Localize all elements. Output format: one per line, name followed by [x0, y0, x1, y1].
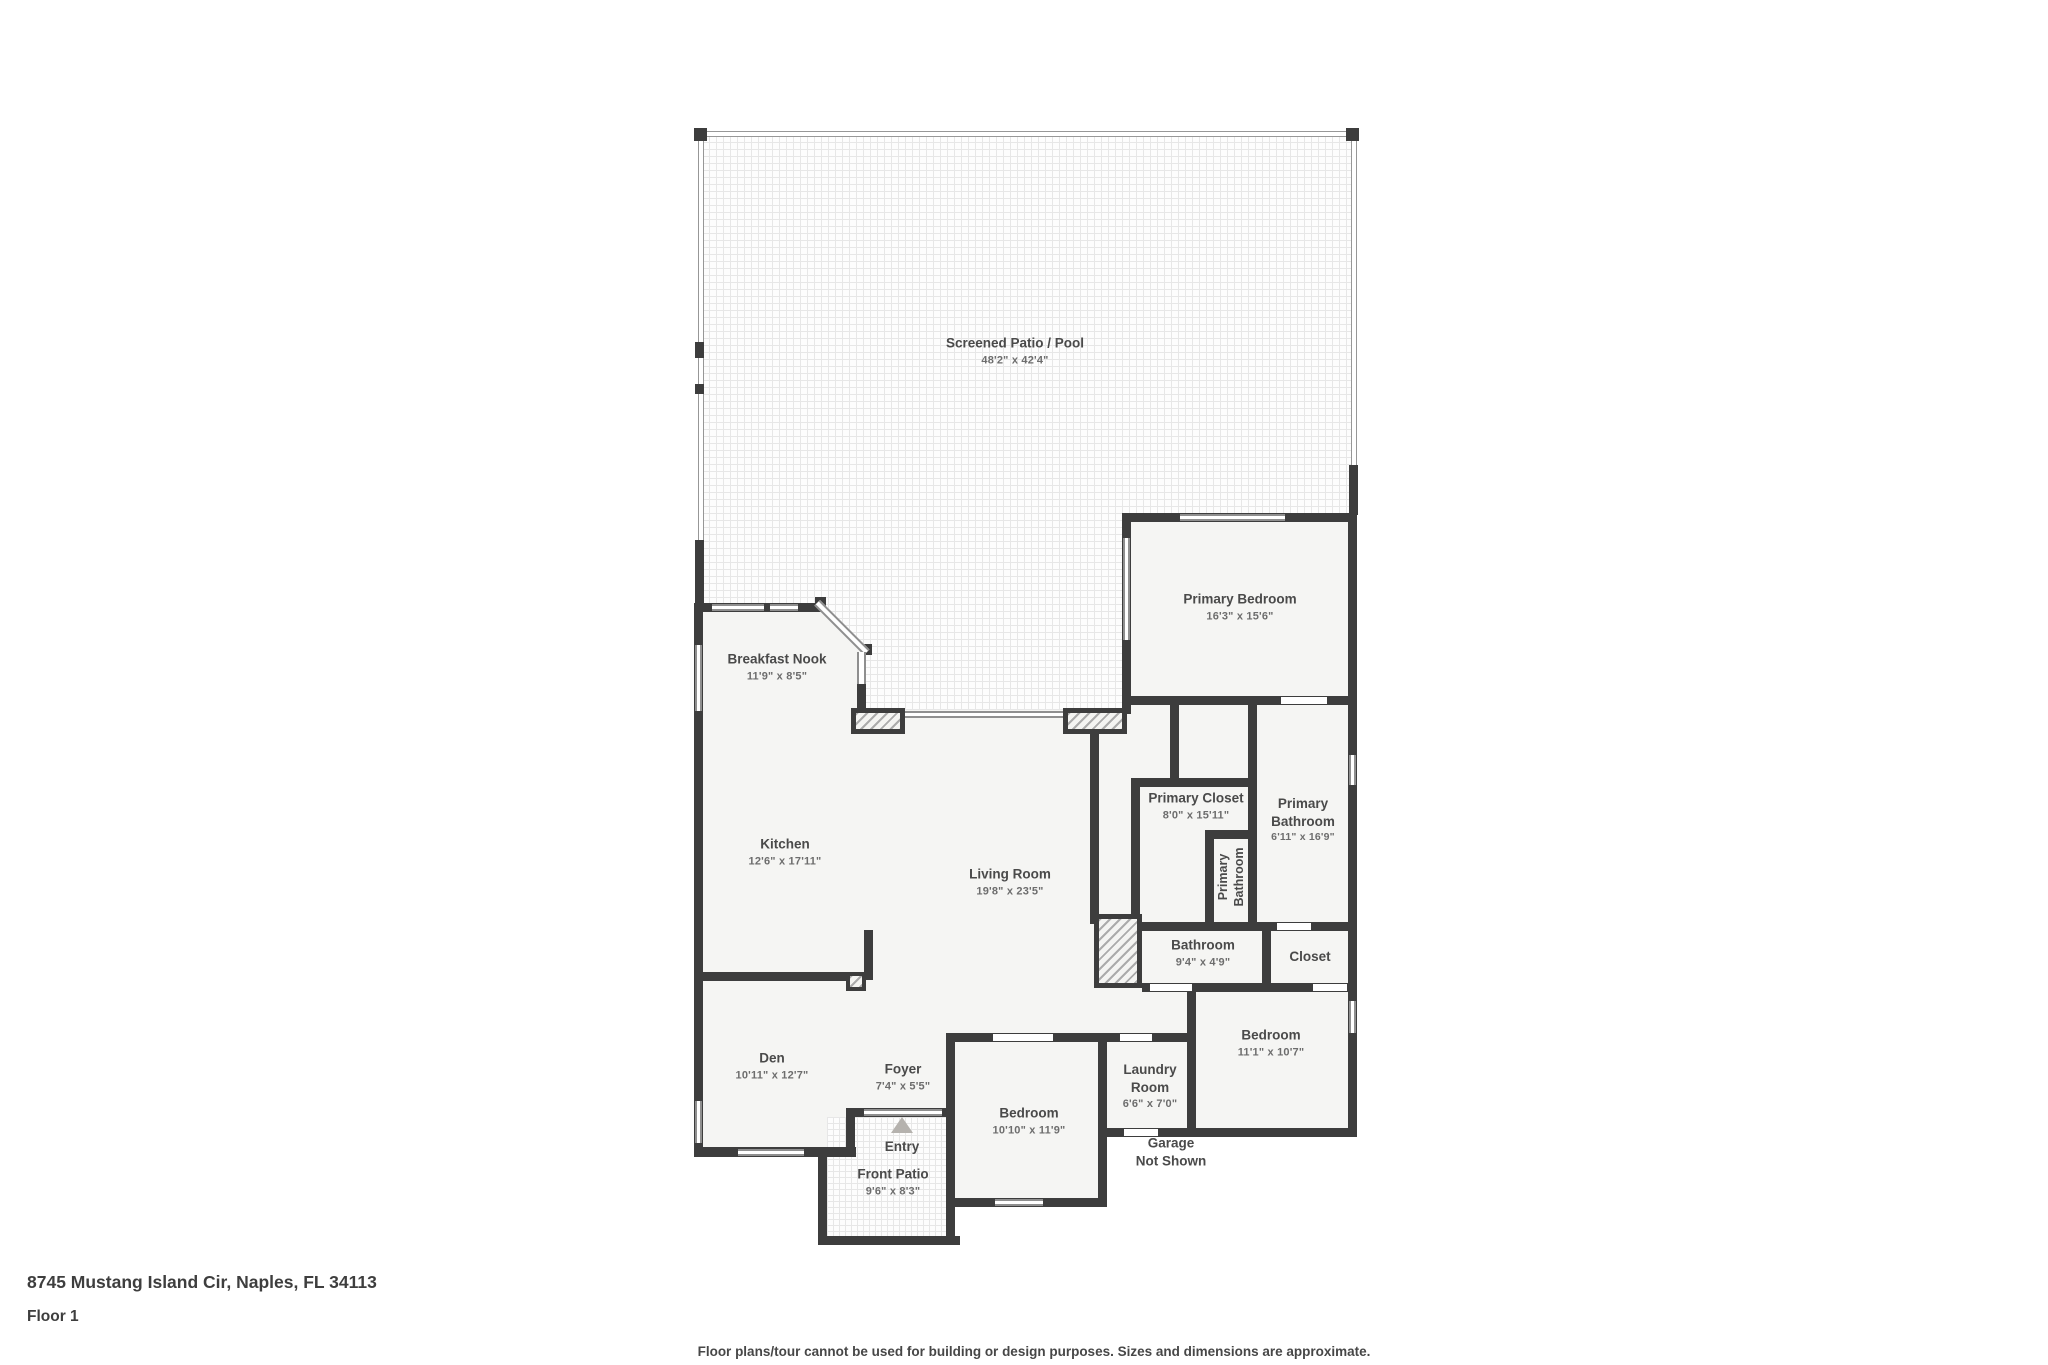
- room-label-living-room: Living Room 19'8" x 23'5": [969, 866, 1051, 899]
- window: [995, 1199, 1043, 1206]
- screen-wall-left: [698, 131, 704, 605]
- room-label-front-patio: Front Patio 9'6" x 8'3": [857, 1166, 928, 1199]
- room-label-den: Den 10'11" x 12'7": [736, 1050, 809, 1083]
- door-opening: [1150, 984, 1192, 991]
- window: [738, 1149, 804, 1156]
- room-name: Primary Bathroom: [1271, 796, 1335, 829]
- room-dims: 6'6" x 7'0": [1114, 1097, 1186, 1111]
- wall-primary-closet-left: [1131, 778, 1140, 918]
- wall-living-right: [1090, 710, 1099, 924]
- sliding-door: [905, 711, 1063, 718]
- screen-wall-right: [1351, 131, 1357, 515]
- wall-front-patio-bottom: [818, 1236, 960, 1245]
- wall-bedroom-laundry-divider: [1098, 1033, 1107, 1207]
- wall-bedroom-bottom-left: [946, 1033, 955, 1245]
- wall-bedroom-right-bottom: [1187, 1128, 1357, 1137]
- screen-corner-post: [694, 128, 707, 141]
- room-dims: 19'8" x 23'5": [969, 884, 1051, 898]
- room-dims: 7'4" x 5'5": [876, 1079, 931, 1093]
- wall-bath-closet-divider: [1262, 922, 1271, 992]
- wall-front-patio-left: [818, 1150, 827, 1245]
- room-label-foyer: Foyer 7'4" x 5'5": [876, 1061, 931, 1094]
- room-dims: 10'10" x 11'9": [993, 1123, 1066, 1137]
- window: [1349, 1001, 1356, 1033]
- wall-primary-bath-small-left: [1205, 830, 1214, 922]
- wall-primary-bedroom-right: [1348, 513, 1357, 705]
- door-opening: [1281, 697, 1327, 704]
- window: [695, 645, 702, 711]
- floor-plan-page: Screened Patio / Pool 48'2" x 42'4" Prim…: [0, 0, 2048, 1365]
- wall-bedroom-laundry-top: [946, 1033, 1196, 1042]
- room-label-closet: Closet: [1289, 948, 1330, 966]
- disclaimer-text: Floor plans/tour cannot be used for buil…: [698, 1344, 1371, 1359]
- room-label-primary-bedroom: Primary Bedroom 16'3" x 15'6": [1183, 591, 1296, 624]
- window: [712, 604, 764, 611]
- sliding-door: [1123, 538, 1130, 640]
- room-dims: 9'4" x 4'9": [1171, 955, 1235, 969]
- screen-post: [1349, 465, 1358, 515]
- room-name: Bedroom: [999, 1106, 1058, 1121]
- floor-label: Floor 1: [27, 1308, 79, 1326]
- room-label-primary-bathroom-small: Primary Bathroom: [1215, 831, 1248, 923]
- room-name: Den: [759, 1051, 785, 1066]
- window: [695, 1101, 702, 1143]
- room-name: Screened Patio / Pool: [946, 336, 1084, 351]
- room-name: Primary Bedroom: [1183, 592, 1296, 607]
- wall-primary-bath-right: [1348, 705, 1357, 922]
- door-opening: [993, 1034, 1053, 1041]
- room-label-breakfast-nook: Breakfast Nook 11'9" x 8'5": [727, 651, 826, 684]
- door-opening: [1313, 984, 1347, 991]
- room-label-garage: Garage Not Shown: [1136, 1134, 1207, 1169]
- room-note: Not Shown: [1136, 1152, 1207, 1170]
- window: [1180, 514, 1285, 521]
- screen-wall-top: [698, 131, 1357, 137]
- room-name: Garage: [1148, 1135, 1195, 1150]
- room-label-bedroom-right: Bedroom 11'1" x 10'7": [1238, 1027, 1305, 1060]
- room-dims: 16'3" x 15'6": [1183, 609, 1296, 623]
- room-dims: 11'9" x 8'5": [727, 669, 826, 683]
- window: [857, 652, 866, 684]
- room-label-primary-closet: Primary Closet 8'0" x 15'11": [1148, 790, 1243, 823]
- wall-primary-closet-top: [1131, 778, 1257, 787]
- room-name: Living Room: [969, 867, 1051, 882]
- room-label-bedroom-bottom: Bedroom 10'10" x 11'9": [993, 1105, 1066, 1138]
- room-name: Front Patio: [857, 1167, 928, 1182]
- room-name: Entry: [885, 1139, 920, 1154]
- room-dims: 8'0" x 15'11": [1148, 808, 1243, 822]
- room-name: Primary Bathroom: [1216, 847, 1246, 906]
- room-dims: 9'6" x 8'3": [857, 1184, 928, 1198]
- wall-bedroom-right-left: [1187, 983, 1196, 1137]
- room-label-primary-bathroom: Primary Bathroom 6'11" x 16'9": [1257, 795, 1349, 845]
- room-name: Bedroom: [1241, 1028, 1300, 1043]
- room-name: Laundry Room: [1123, 1062, 1176, 1095]
- room-name: Primary Closet: [1148, 791, 1243, 806]
- room-name: Foyer: [885, 1062, 922, 1077]
- door-opening: [1277, 923, 1311, 930]
- screen-post: [695, 540, 704, 605]
- room-label-bathroom: Bathroom 9'4" x 4'9": [1171, 937, 1235, 970]
- room-name: Bathroom: [1171, 938, 1235, 953]
- screen-post: [695, 384, 704, 394]
- room-dims: 12'6" x 17'11": [749, 854, 822, 868]
- wall-kitchen-den-divider: [694, 972, 850, 981]
- wall-closet-right: [1348, 922, 1357, 983]
- screen-corner-post: [1346, 128, 1359, 141]
- wall-suite-hall-divider: [1170, 705, 1179, 782]
- room-name: Breakfast Nook: [727, 652, 826, 667]
- room-label-laundry-room: Laundry Room 6'6" x 7'0": [1114, 1061, 1186, 1111]
- room-name: Closet: [1289, 949, 1330, 964]
- room-label-screened-patio: Screened Patio / Pool 48'2" x 42'4": [946, 335, 1084, 368]
- wall-primary-bath-divider: [1248, 705, 1257, 931]
- room-label-entry: Entry: [885, 1138, 920, 1156]
- room-dims: 10'11" x 12'7": [736, 1068, 809, 1082]
- screen-post: [695, 342, 704, 358]
- room-dims: 48'2" x 42'4": [946, 353, 1084, 367]
- room-dims: 6'11" x 16'9": [1257, 831, 1349, 845]
- room-label-kitchen: Kitchen 12'6" x 17'11": [749, 836, 822, 869]
- address-title: 8745 Mustang Island Cir, Naples, FL 3411…: [27, 1272, 377, 1293]
- pantry-hatch: [846, 972, 866, 991]
- window: [1349, 755, 1356, 785]
- entry-direction-icon: [891, 1117, 913, 1133]
- room-name: Kitchen: [760, 837, 810, 852]
- door-opening: [1120, 1034, 1152, 1041]
- step-hatch: [1063, 708, 1127, 734]
- window: [770, 604, 798, 611]
- step-hatch: [851, 708, 905, 734]
- room-dims: 11'1" x 10'7": [1238, 1045, 1305, 1059]
- entry-door: [864, 1109, 942, 1116]
- shower-hatch: [1094, 914, 1142, 988]
